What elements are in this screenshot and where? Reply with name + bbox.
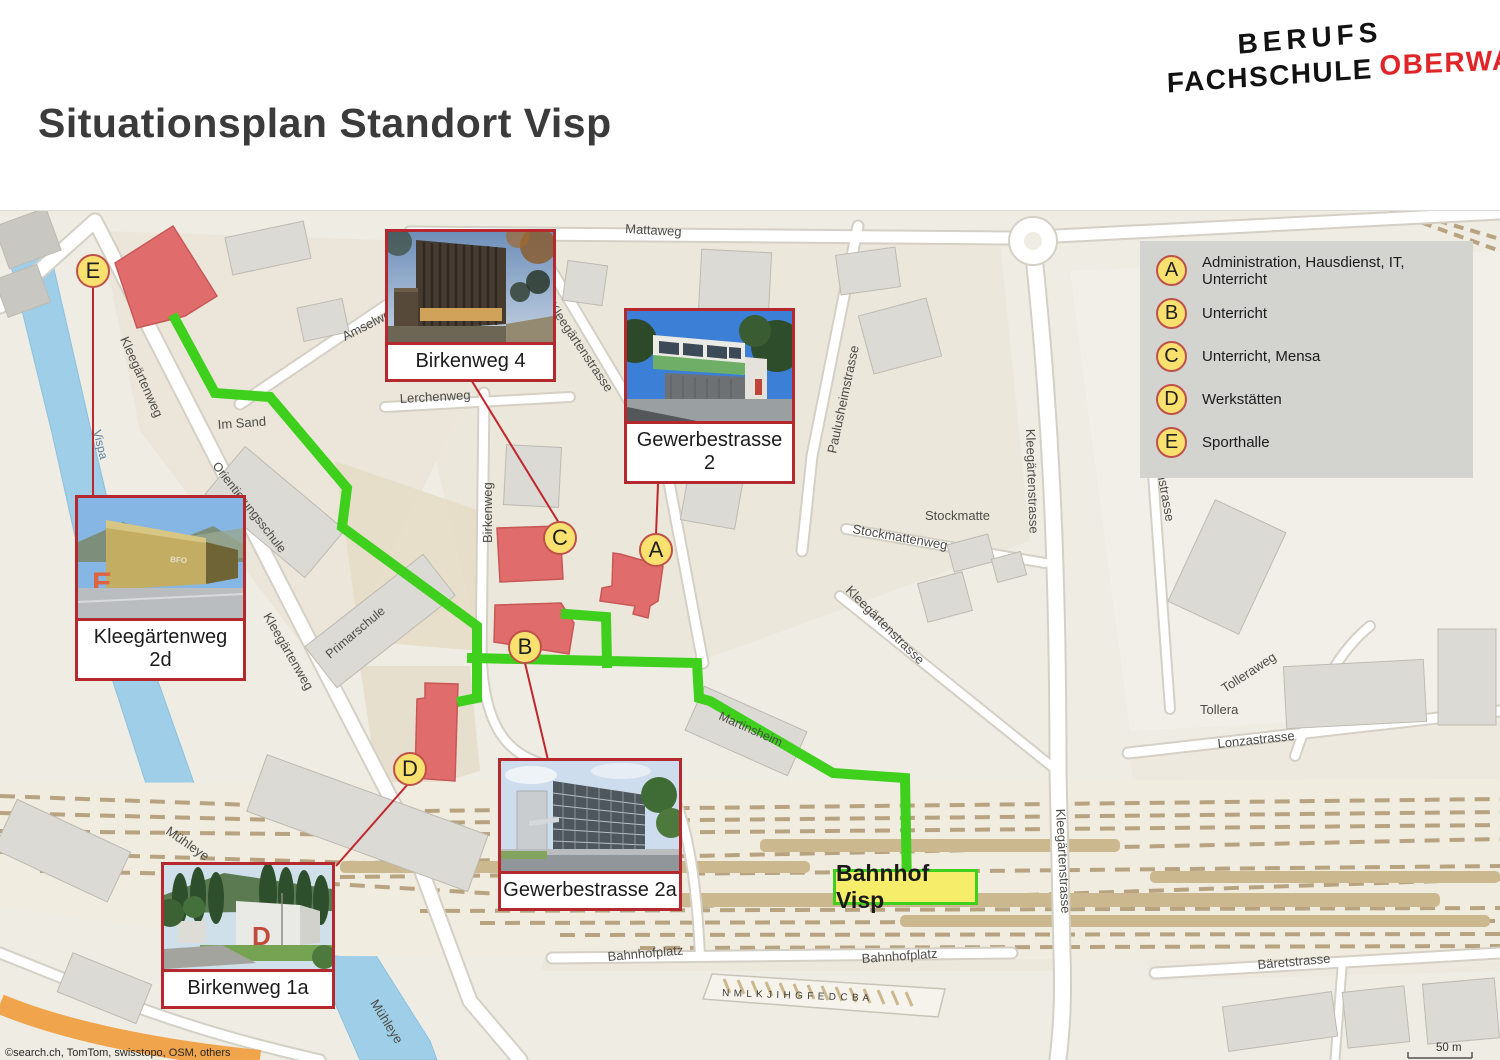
station-label: Bahnhof Visp [833,869,978,905]
map-marker-E[interactable]: E [76,254,110,288]
legend-badge-d: D [1156,384,1187,415]
street-label-stockmatte: Stockmatte [925,508,990,523]
scale-label: 50 m [1436,1042,1462,1054]
legend-row-b: B Unterricht [1156,298,1473,329]
gewerbestrasse-2-photo [627,311,792,421]
photo-card-label: Kleegärtenweg 2d [78,618,243,678]
photo-card-kleegartenweg-2d[interactable]: BFO E Kleegärtenweg 2d [75,495,246,681]
svg-text:BFO: BFO [170,555,187,565]
legend-label-c: Unterricht, Mensa [1202,348,1320,365]
legend-row-a: A Administration, Hausdienst, IT, Unterr… [1156,255,1473,286]
legend-label-d: Werkstätten [1202,391,1282,408]
legend-label-a: Administration, Hausdienst, IT, Unterric… [1202,254,1473,288]
photo-card-label: Gewerbestrasse 2 [627,421,792,481]
legend-badge-e: E [1156,427,1187,458]
map-marker-C[interactable]: C [543,521,577,555]
page-title: Situationsplan Standort Visp [38,100,612,147]
school-logo: BERUFS FACHSCHULEOBERWALLIS [1165,10,1467,101]
photo-card-birkenweg-4[interactable]: Birkenweg 4 [385,229,556,382]
photo-card-label: Gewerbestrasse 2a [501,871,679,908]
legend-badge-b: B [1156,298,1187,329]
map-copyright: ©search.ch, TomTom, swisstopo, OSM, othe… [5,1047,231,1059]
legend-badge-a: A [1156,255,1187,286]
photo-card-label: Birkenweg 4 [388,342,553,379]
legend: A Administration, Hausdienst, IT, Unterr… [1140,241,1473,478]
legend-row-c: C Unterricht, Mensa [1156,341,1473,372]
photo-card-gewerbestrasse-2[interactable]: Gewerbestrasse 2 [624,308,795,484]
legend-row-d: D Werkstätten [1156,384,1473,415]
photo-card-label: Birkenweg 1a [164,969,332,1006]
photo-card-birkenweg-1a[interactable]: D Birkenweg 1a [161,862,335,1009]
street-label-mattaweg: Mattaweg [625,221,682,239]
map-marker-B[interactable]: B [508,630,542,664]
birkenweg-1a-photo: D [164,865,332,969]
legend-label-b: Unterricht [1202,305,1267,322]
photo-card-gewerbestrasse-2a[interactable]: Gewerbestrasse 2a [498,758,682,911]
legend-label-e: Sporthalle [1202,434,1270,451]
map-marker-A[interactable]: A [639,533,673,567]
kleegartenweg-2d-photo: BFO E [78,498,243,618]
legend-row-e: E Sporthalle [1156,427,1473,458]
street-label-birkenweg: Birkenweg [480,482,495,543]
street-label-tollera: Tollera [1200,702,1239,717]
situation-map[interactable]: N M L K J I H G F E D C B A [0,210,1500,1060]
birkenweg-4-photo [388,232,553,342]
map-marker-D[interactable]: D [393,752,427,786]
legend-badge-c: C [1156,341,1187,372]
gewerbestrasse-2a-photo [501,761,679,871]
